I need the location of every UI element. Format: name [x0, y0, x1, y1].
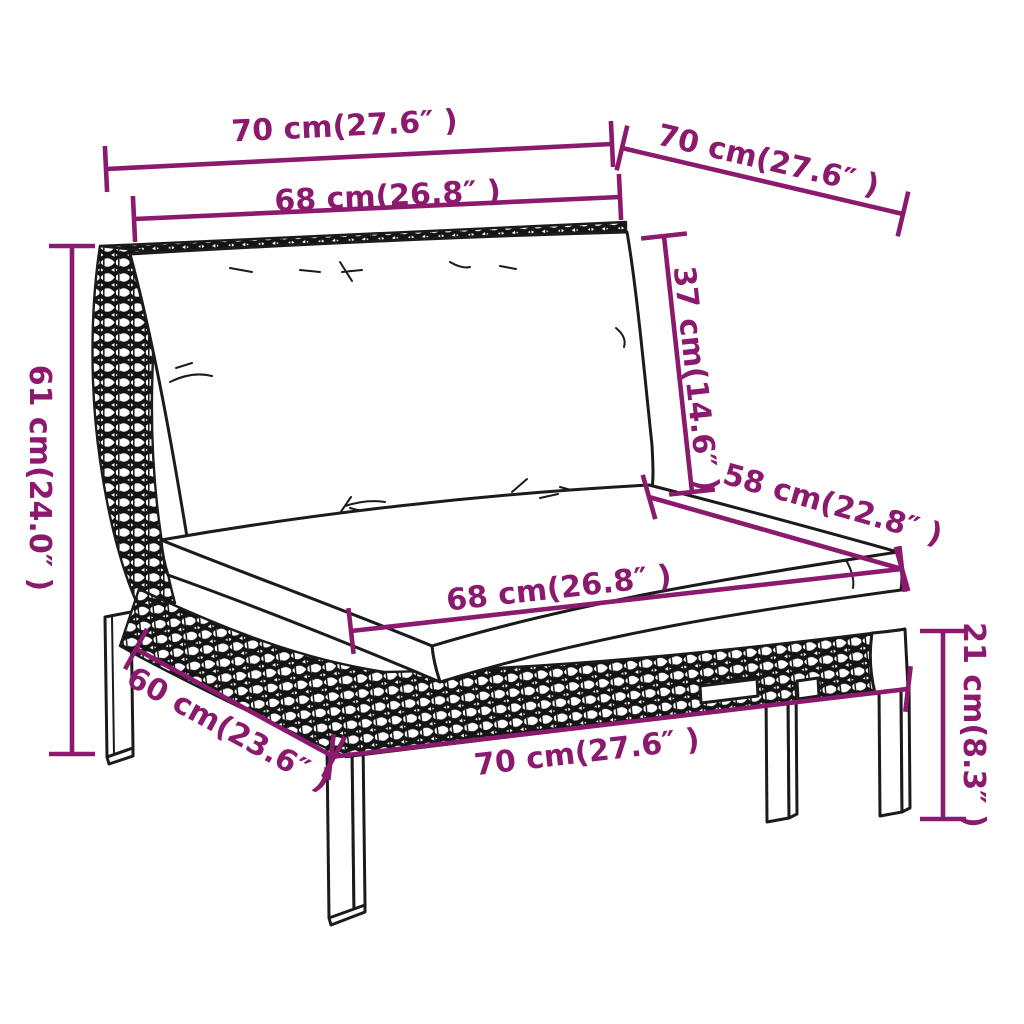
dim-top-width-line: [106, 144, 612, 169]
dim-back-cushion-height-label: 37 cm(14.6″ ): [666, 264, 725, 493]
dim-leg-height-label: 21 cm(8.3″ ): [956, 622, 991, 828]
base-right-cap: [870, 629, 908, 693]
sofa-dimension-diagram: 70 cm(27.6″ ) 70 cm(27.6″ ) 68 cm(26.8″ …: [0, 0, 1024, 1024]
dim-back-cushion-width-label: 68 cm(26.8″ ): [274, 174, 502, 219]
dim-top-depth-label: 70 cm(27.6″ ): [654, 118, 883, 204]
dim-top-width-label: 70 cm(27.6″ ): [231, 103, 459, 149]
dim-total-height-label: 61 cm(24.0″ ): [22, 365, 57, 592]
sofa-drawing: [93, 222, 911, 925]
base-clip-right: [797, 678, 819, 699]
dimension-diagram-page: 70 cm(27.6″ ) 70 cm(27.6″ ) 68 cm(26.8″ …: [0, 0, 1024, 1024]
